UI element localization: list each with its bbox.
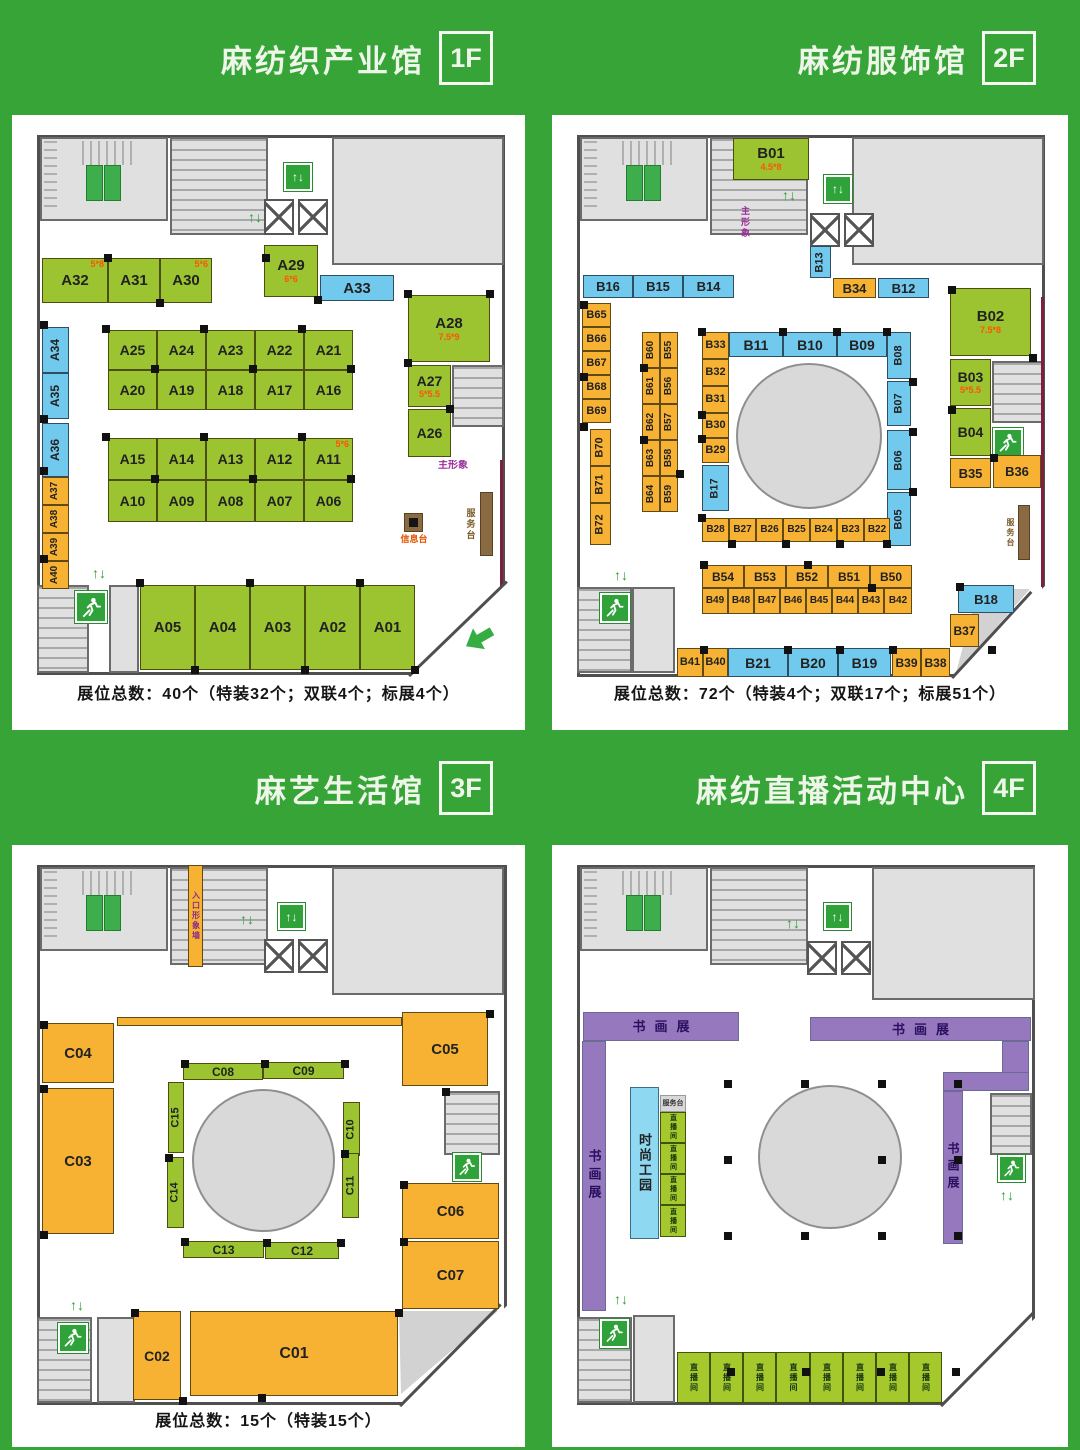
zone-C03: C03 [42,1088,114,1234]
column-marker [802,1368,810,1376]
column-marker [833,328,841,336]
zone-C12: C12 [265,1242,339,1259]
zone-直播间: 直播间 [660,1174,686,1205]
column-marker [836,540,844,548]
column-marker [878,1080,886,1088]
zone-area [1018,505,1030,560]
zone-A24: A24 [157,330,206,370]
zone-B26: B26 [756,518,783,542]
booth-count-caption-1f: 展位总数：40个（特装32个；双联4个；标展4个） [12,680,525,704]
zone-书画展: 书画展 [810,1017,1031,1041]
zone-B12: B12 [878,278,929,298]
booth-size-label: 5*5.5 [419,390,440,399]
zone-A04: A04 [195,585,250,670]
column-marker [877,1368,885,1376]
column-marker [1029,354,1037,362]
zone-A32: A325*8 [42,258,108,303]
zone-B72: B72 [590,503,611,545]
column-marker [836,646,844,654]
zone-B08: B08 [887,332,911,379]
zone-直播间: 直播间 [660,1205,686,1237]
column-marker [990,454,998,462]
zone-area [117,1017,402,1026]
zone-B01: B014.5*8 [733,138,809,180]
floor-badge-2f: 2F [982,31,1036,85]
column-marker [700,646,708,654]
column-marker [156,299,164,307]
zone-A06: A06 [304,480,353,522]
zone-主形象: 主形象 [738,199,751,245]
booth-layer: 入口形象墙C04C03C05C06C07C02C01C08C09C15C14C1… [12,845,525,1447]
zone-A25: A25 [108,330,157,370]
zone-C07: C07 [402,1241,499,1309]
zone-A16: A16 [304,370,353,410]
zone-C06: C06 [402,1183,499,1239]
zone-B04: B04 [950,408,991,456]
column-marker [486,1010,494,1018]
zone-A30: A305*6 [160,258,212,303]
floor-badge-4f: 4F [982,761,1036,815]
column-marker [249,475,257,483]
zone-直播间: 直播间 [660,1143,686,1174]
zone-B27: B27 [729,518,756,542]
zone-B02: B027.5*8 [950,288,1031,356]
zone-A09: A09 [157,480,206,522]
zone-服务台: 服务台 [1003,507,1017,559]
column-marker [948,406,956,414]
column-marker [724,1080,732,1088]
column-marker [883,328,891,336]
column-marker [165,1154,173,1162]
booth-layer: 书画展书画展书画展书画展时尚工园服务台直播间直播间直播间直播间直播间直播间直播间… [552,845,1068,1447]
column-marker [878,1156,886,1164]
zone-A17: A17 [255,370,304,410]
column-marker [263,1239,271,1247]
booth-size-label: 7.5*8 [980,326,1001,335]
zone-信息台: 信息台 [392,534,436,545]
zone-B37: B37 [950,614,979,647]
column-marker [298,325,306,333]
zone-书画展: 书画展 [582,1041,606,1311]
floor-badge-1f: 1F [439,31,493,85]
column-marker [442,1088,450,1096]
zone-B16: B16 [583,275,633,298]
zone-C15: C15 [168,1082,184,1153]
column-marker [404,290,412,298]
zone-A12: A12 [255,438,304,480]
column-marker [804,561,812,569]
zone-A35: A35 [42,373,69,419]
zone-B56: B56 [660,368,678,404]
booth-size-label: 5*8 [90,260,104,269]
zone-直播间: 直播间 [660,1112,686,1143]
zone-C05: C05 [402,1012,488,1086]
zone-B51: B51 [828,565,870,588]
column-marker [883,540,891,548]
zone-入口形象墙: 入口形象墙 [188,865,203,967]
column-marker [988,646,996,654]
column-marker [104,254,112,262]
zone-A18: A18 [206,370,255,410]
column-marker [779,328,787,336]
zone-A23: A23 [206,330,255,370]
column-marker [102,325,110,333]
zone-C14: C14 [167,1157,184,1228]
zone-B06: B06 [887,430,911,490]
zone-B32: B32 [702,359,729,386]
column-marker [200,433,208,441]
zone-B22: B22 [864,518,890,542]
column-marker [400,1238,408,1246]
zone-C09: C09 [263,1062,344,1079]
zone-C04: C04 [42,1023,114,1083]
zone-A33: A33 [320,275,394,301]
zone-C13: C13 [183,1241,264,1258]
zone-B24: B24 [810,518,837,542]
zone-B55: B55 [660,332,678,368]
column-marker [191,666,199,674]
column-marker [446,405,454,413]
column-marker [151,365,159,373]
zone-B71: B71 [590,466,611,503]
zone-A15: A15 [108,438,157,480]
zone-B14: B14 [683,275,734,298]
zone-A38: A38 [42,505,69,533]
zone-B70: B70 [590,429,611,466]
column-marker [404,359,412,367]
floor-plan-1f: ↑↓ ↑↓ ↑↓ A325*8A31A305*6A296*6A33A287.5*… [12,115,525,730]
zone-B03: B035*5.5 [950,359,991,406]
column-marker [356,579,364,587]
zone-直播间: 直播间 [810,1352,843,1403]
column-marker [40,555,48,563]
zone-A40: A40 [42,561,69,589]
column-marker [868,584,876,592]
booth-count-caption-2f: 展位总数：72个（特装4个；双联17个；标展51个） [552,680,1068,704]
column-marker [40,415,48,423]
booth-size-label: 5*5.5 [960,386,981,395]
zone-直播间: 直播间 [710,1352,743,1403]
column-marker [698,411,706,419]
zone-B34: B34 [833,278,876,298]
column-marker [151,475,159,483]
column-marker [727,1368,735,1376]
column-marker [676,470,684,478]
hall-title-4f: 麻纺直播活动中心 [696,766,968,811]
column-marker [347,365,355,373]
zone-直播间: 直播间 [876,1352,909,1403]
column-marker [400,1181,408,1189]
header-2f: 麻纺服饰馆 2F [552,28,1068,88]
column-marker [301,666,309,674]
zone-A02: A02 [305,585,360,670]
zone-B10: B10 [783,332,837,357]
zone-B47: B47 [754,588,780,614]
zone-B11: B11 [729,332,783,357]
zone-C11: C11 [342,1153,359,1218]
zone-B30: B30 [702,413,729,438]
column-marker [341,1060,349,1068]
column-marker [580,301,588,309]
booth-size-label: 5*6 [194,260,208,269]
column-marker [246,579,254,587]
column-marker [909,428,917,436]
zone-B20: B20 [788,648,838,677]
booth-size-label: 5*6 [335,440,349,449]
column-marker [249,365,257,373]
zone-A13: A13 [206,438,255,480]
booth-layer: B014.5*8B16B15B14B13B34B12B027.5*8B035*5… [552,115,1068,730]
column-marker [314,296,322,304]
column-marker [909,378,917,386]
zone-A37: A37 [42,477,69,505]
column-marker [131,1309,139,1317]
zone-服务台: 服务台 [462,493,478,555]
zone-B15: B15 [633,275,683,298]
zone-B19: B19 [838,648,891,677]
floor-plan-3f: ↑↓ ↑↓ ↑↓ 入口形象墙C04C03C05C06C07C02C01C08C0… [12,845,525,1447]
zone-B49: B49 [702,588,728,614]
column-marker [954,1156,962,1164]
zone-B46: B46 [780,588,806,614]
zone-B17: B17 [702,465,729,511]
zone-B23: B23 [837,518,864,542]
zone-B31: B31 [702,386,729,413]
zone-A14: A14 [157,438,206,480]
zone-A28: A287.5*9 [408,295,490,362]
zone-B09: B09 [837,332,887,357]
zone-B18: B18 [958,585,1014,613]
zone-B48: B48 [728,588,754,614]
column-marker [486,290,494,298]
zone-B57: B57 [660,404,678,440]
column-marker [954,1080,962,1088]
column-marker [40,467,48,475]
zone-书画展: 书画展 [583,1012,739,1041]
zone-A29: A296*6 [264,245,318,297]
zone-B50: B50 [870,565,912,588]
zone-A21: A21 [304,330,353,370]
column-marker [258,1394,266,1402]
zone-B38: B38 [921,648,950,677]
zone-B62: B62 [642,404,660,440]
zone-B35: B35 [950,458,991,488]
zone-直播间: 直播间 [743,1352,776,1403]
zone-B64: B64 [642,476,660,512]
column-marker [181,1238,189,1246]
column-marker [640,364,648,372]
column-marker [728,540,736,548]
column-marker [889,646,897,654]
zone-B61: B61 [642,368,660,404]
zone-A03: A03 [250,585,305,670]
zone-A01: A01 [360,585,415,670]
zone-B13: B13 [810,246,831,278]
zone-A11: A115*6 [304,438,353,480]
column-marker [179,1397,187,1405]
zone-B53: B53 [744,565,786,588]
zone-A26: A26 [408,409,451,457]
column-marker [40,1021,48,1029]
hall-title-3f: 麻艺生活馆 [255,766,425,811]
zone-A31: A31 [108,258,160,303]
column-marker [580,373,588,381]
column-marker [801,1080,809,1088]
zone-B29: B29 [702,438,729,463]
zone-B44: B44 [832,588,858,614]
zone-A27: A275*5.5 [408,365,451,407]
hall-title-2f: 麻纺服饰馆 [798,36,968,81]
column-marker [724,1232,732,1240]
zone-直播间: 直播间 [776,1352,810,1403]
booth-size-label: 6*6 [284,275,298,284]
column-marker [341,1150,349,1158]
column-marker [784,646,792,654]
zone-B59: B59 [660,476,678,512]
zone-B67: B67 [582,351,611,375]
column-marker [102,433,110,441]
column-marker [801,1232,809,1240]
zone-时尚工园: 时尚工园 [630,1087,659,1239]
booth-count-caption-3f: 展位总数：15个（特装15个） [12,1407,525,1431]
zone-A34: A34 [42,327,69,373]
column-marker [700,561,708,569]
zone-直播间: 直播间 [677,1352,710,1403]
column-marker [956,583,964,591]
zone-area [409,518,418,527]
zone-B66: B66 [582,327,611,351]
header-4f: 麻纺直播活动中心 4F [552,758,1068,818]
zone-B36: B36 [993,455,1041,488]
zone-C01: C01 [190,1311,398,1396]
zone-服务台: 服务台 [660,1095,686,1112]
venue-floor-map-poster: 麻纺织产业馆 1F 麻纺服饰馆 2F 麻艺生活馆 3F 麻纺直播活动中心 4F … [0,0,1080,1450]
zone-A07: A07 [255,480,304,522]
column-marker [40,1085,48,1093]
zone-A08: A08 [206,480,255,522]
zone-直播间: 直播间 [843,1352,876,1403]
zone-B07: B07 [887,381,911,426]
column-marker [640,436,648,444]
column-marker [724,1156,732,1164]
zone-B45: B45 [806,588,832,614]
column-marker [698,514,706,522]
header-3f: 麻艺生活馆 3F [12,758,525,818]
column-marker [782,540,790,548]
zone-C08: C08 [183,1063,263,1080]
column-marker [136,579,144,587]
column-marker [698,435,706,443]
zone-A05: A05 [140,585,195,670]
zone-书画展: 书画展 [943,1091,963,1244]
column-marker [948,286,956,294]
column-marker [411,666,419,674]
zone-B69: B69 [582,399,611,423]
zone-B60: B60 [642,332,660,368]
zone-C10: C10 [343,1102,360,1156]
column-marker [40,1231,48,1239]
column-marker [40,321,48,329]
zone-B05: B05 [887,492,911,546]
column-marker [952,1368,960,1376]
zone-area [1002,1041,1029,1074]
floor-plan-4f: ↑↓ ↑↓ ↑↓ ↑↓ 书画展书画展书画展书画展时尚工园服务台直播间直播间直播间… [552,845,1068,1447]
zone-B42: B42 [884,588,912,614]
zone-B63: B63 [642,440,660,476]
column-marker [298,433,306,441]
booth-size-label: 4.5*8 [760,163,781,172]
floor-plan-2f: ↑↓ ↑↓ ↑↓ B014.5*8B16B15B14B13B34B12B027.… [552,115,1068,730]
column-marker [395,1309,403,1317]
booth-layer: A325*8A31A305*6A296*6A33A287.5*9A275*5.5… [12,115,525,730]
zone-A20: A20 [108,370,157,410]
column-marker [878,1232,886,1240]
zone-主形象: 主形象 [432,460,474,472]
zone-B33: B33 [702,332,729,359]
column-marker [181,1060,189,1068]
hall-title-1f: 麻纺织产业馆 [221,36,425,81]
zone-B54: B54 [702,565,744,588]
zone-A22: A22 [255,330,304,370]
zone-A10: A10 [108,480,157,522]
column-marker [261,1060,269,1068]
zone-area [480,492,493,556]
column-marker [954,1232,962,1240]
column-marker [200,325,208,333]
zone-C02: C02 [133,1311,181,1400]
column-marker [337,1239,345,1247]
floor-badge-3f: 3F [439,761,493,815]
column-marker [580,423,588,431]
column-marker [698,328,706,336]
column-marker [262,254,270,262]
zone-B21: B21 [728,648,788,677]
zone-B25: B25 [783,518,810,542]
zone-A19: A19 [157,370,206,410]
header-1f: 麻纺织产业馆 1F [12,28,525,88]
zone-直播间: 直播间 [909,1352,942,1403]
zone-B28: B28 [702,518,729,542]
column-marker [909,488,917,496]
column-marker [347,475,355,483]
booth-size-label: 7.5*9 [438,333,459,342]
